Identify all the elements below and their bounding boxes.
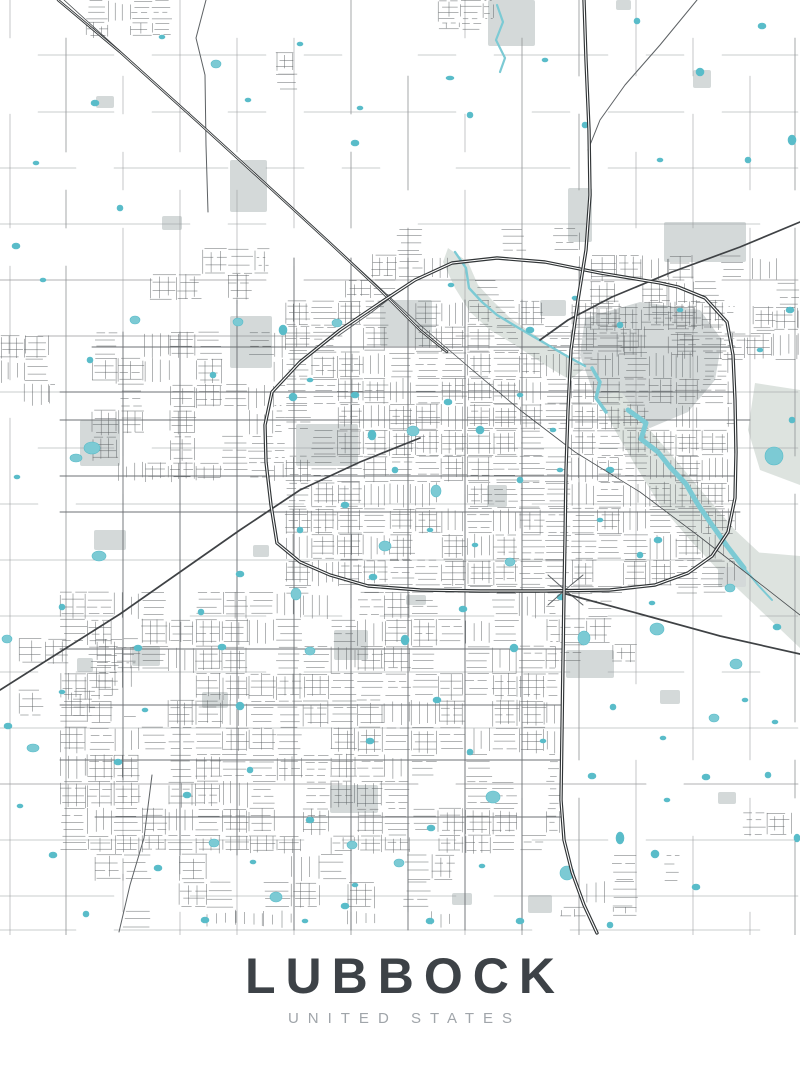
playa-lake (616, 832, 624, 844)
playa-lake (444, 399, 452, 405)
land-patch (253, 545, 269, 557)
playa-lake (117, 205, 123, 211)
playa-lake (302, 919, 308, 923)
playa-lake (650, 623, 664, 635)
playa-lake (366, 738, 374, 744)
playa-lake (696, 68, 704, 76)
playa-lake (607, 922, 613, 928)
land-patch (540, 300, 566, 316)
playa-lake (209, 839, 219, 847)
playa-lake (510, 644, 518, 652)
land-patch (566, 650, 614, 678)
playa-lake (651, 850, 659, 858)
playa-lake (247, 767, 253, 773)
playa-lake (211, 60, 221, 68)
playa-lake (306, 817, 314, 823)
playa-lake (472, 543, 478, 547)
playa-lake (291, 588, 301, 600)
playa-lake (83, 911, 89, 917)
playa-lake (427, 825, 435, 831)
playa-lake (210, 372, 216, 378)
playa-lake (2, 635, 12, 643)
playa-lake (773, 624, 781, 630)
playa-lake (765, 772, 771, 778)
playa-lake (634, 18, 640, 24)
playa-lake (17, 804, 23, 808)
playa-lake (70, 454, 82, 462)
playa-lake (758, 23, 766, 29)
playa-lake (765, 447, 783, 465)
city-streets-layer (0, 0, 799, 927)
lubbock-map-svg (0, 0, 800, 935)
playa-lake (476, 426, 484, 434)
playa-lake (357, 106, 363, 110)
playa-lake (637, 552, 643, 558)
playa-lake (433, 697, 441, 703)
playa-lake (130, 316, 140, 324)
playa-lake (341, 903, 349, 909)
playa-lake (788, 135, 796, 145)
playa-lake (789, 417, 795, 423)
playa-lake (516, 918, 524, 924)
land-patch (616, 0, 631, 10)
sw-curve-road (119, 775, 152, 932)
playa-lake (610, 704, 616, 710)
playa-lake (709, 714, 719, 722)
playa-lake (341, 502, 349, 508)
land-patch (528, 895, 552, 913)
playa-lake (59, 690, 65, 694)
fm-road-north (588, 0, 697, 150)
playa-lake (114, 759, 122, 765)
playa-lake (245, 98, 251, 102)
playa-lake (84, 442, 100, 454)
playa-lake (91, 100, 99, 106)
playa-lake (742, 698, 748, 702)
land-patch (162, 216, 182, 230)
playa-lake (351, 392, 359, 398)
poster-title: LUBBOCK (0, 949, 800, 1004)
playa-lake (59, 604, 65, 610)
land-patch (487, 485, 507, 507)
playa-lake (218, 644, 226, 650)
city-map-figure (0, 0, 800, 935)
playa-lake (446, 76, 454, 80)
playa-lake (134, 645, 142, 651)
playa-lake (279, 325, 287, 335)
playa-lake (486, 791, 500, 803)
playa-lake (578, 631, 590, 645)
playa-lake (92, 551, 106, 561)
playa-lake (517, 477, 523, 483)
playa-lake (479, 864, 485, 868)
playa-lake (351, 140, 359, 146)
land-patch (488, 0, 535, 46)
playa-lake (772, 720, 778, 724)
playa-lake (649, 601, 655, 605)
playa-lake (236, 571, 244, 577)
playa-lake (617, 322, 623, 328)
playa-lake (526, 327, 534, 333)
playa-lake (557, 468, 563, 472)
playa-lake (297, 527, 303, 533)
playa-lake (87, 357, 93, 363)
playa-lake (49, 852, 57, 858)
playa-lake (657, 158, 663, 162)
playa-lake (201, 917, 209, 923)
land-patch (718, 792, 736, 804)
playa-lake (745, 157, 751, 163)
playa-lake (505, 558, 515, 566)
land-patch (660, 690, 680, 704)
playa-lake (369, 574, 377, 580)
playa-lake (467, 112, 473, 118)
playa-lake (159, 35, 165, 39)
playa-lake (467, 749, 473, 755)
playa-lake (448, 283, 454, 287)
playa-lake (588, 773, 596, 779)
playa-lake (702, 774, 710, 780)
playa-lake (654, 537, 662, 543)
playa-lake (725, 584, 735, 592)
playa-lake (142, 708, 148, 712)
playa-lake (664, 798, 670, 802)
nw-branch-road (196, 0, 208, 212)
playa-lake (660, 736, 666, 740)
playa-lake (297, 42, 303, 46)
playa-lake (332, 319, 342, 327)
playa-lake (12, 243, 20, 249)
playa-lake (289, 393, 297, 401)
playa-lake (198, 609, 204, 615)
playa-lake (14, 475, 20, 479)
playa-lake (692, 884, 700, 890)
playa-lake (550, 428, 556, 432)
playa-lake (33, 161, 39, 165)
playa-lake (540, 739, 546, 743)
land-patch (77, 658, 93, 672)
land-patch (80, 420, 120, 466)
playa-lake (379, 541, 391, 551)
playa-lake (4, 723, 12, 729)
playa-lake (427, 528, 433, 532)
playa-lake (307, 378, 313, 382)
playa-lake (368, 430, 376, 440)
playa-lake (426, 918, 434, 924)
playa-lake (394, 859, 404, 867)
playa-lake (392, 467, 398, 473)
playa-lake (794, 834, 800, 842)
playa-lake (597, 518, 603, 522)
playa-lake (730, 659, 742, 669)
playa-lake (27, 744, 39, 752)
playa-lake (517, 393, 523, 397)
land-patch (296, 424, 358, 466)
playa-lake (401, 635, 409, 645)
playa-lake (542, 58, 548, 62)
playa-lake (347, 841, 357, 849)
playa-lake (431, 485, 441, 497)
playa-lake (183, 792, 191, 798)
land-patch (94, 530, 126, 550)
playa-lake (154, 865, 162, 871)
poster-subtitle: UNITED STATES (0, 1010, 800, 1027)
poster-title-block: LUBBOCK UNITED STATES (0, 935, 800, 1067)
playa-lake (757, 348, 763, 352)
playa-lake (236, 702, 244, 710)
playa-lake (407, 426, 419, 436)
playa-lake (233, 318, 243, 326)
playa-lake (677, 308, 683, 312)
playa-lake (305, 647, 315, 655)
playa-lake (352, 883, 358, 887)
land-patch (452, 893, 472, 905)
playa-lake (40, 278, 46, 282)
playa-lake (270, 892, 282, 902)
playa-lake (786, 307, 794, 313)
playa-lake (250, 860, 256, 864)
playa-lake (459, 606, 467, 612)
map-poster: LUBBOCK UNITED STATES (0, 0, 800, 1067)
